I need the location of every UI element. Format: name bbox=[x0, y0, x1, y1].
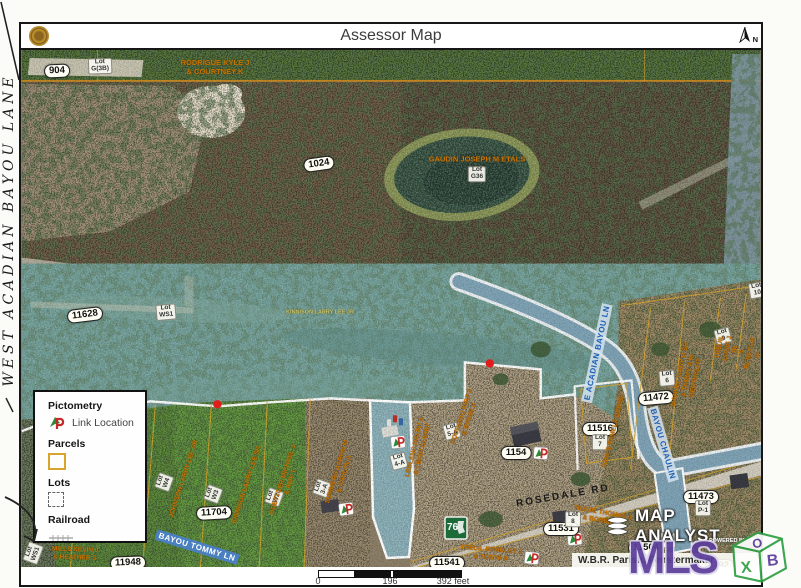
north-label: N bbox=[753, 35, 758, 44]
cube-letter-front: X bbox=[740, 559, 753, 577]
parcel-number: 11948 bbox=[110, 555, 146, 567]
legend-heading-railroad: Railroad bbox=[48, 514, 145, 526]
legend-panel: Pictometry Link Location Parcels Lots Ra… bbox=[33, 390, 147, 543]
lot-value: 6 bbox=[665, 378, 669, 385]
lot-label: LotG(3B) bbox=[88, 58, 112, 74]
parcel-number: 1154 bbox=[501, 446, 532, 460]
title-bar: Assessor Map N bbox=[21, 24, 761, 50]
scale-end: 392 feet bbox=[437, 576, 470, 586]
cube-letter-top: O bbox=[751, 535, 763, 551]
lot-value: G36 bbox=[471, 174, 483, 181]
legend-heading-parcels: Parcels bbox=[48, 438, 145, 450]
mls-watermark-text: MLS bbox=[628, 532, 717, 584]
lot-value: G(3B) bbox=[91, 66, 109, 73]
lot-label: Lot6 bbox=[658, 370, 675, 387]
legend-heading-pictometry: Pictometry bbox=[48, 400, 145, 412]
pictometry-link-marker-icon[interactable] bbox=[338, 502, 354, 516]
handwritten-road-name: WEST ACADIAN BAYOU LANE bbox=[1, 65, 19, 395]
lot-label: LotG36 bbox=[468, 166, 486, 182]
pictometry-link-marker-icon[interactable] bbox=[390, 436, 405, 449]
aerial-map: 904 1024 11628 11704 11948 11541 1154 11… bbox=[21, 50, 761, 567]
lot-value: 4-A bbox=[394, 460, 406, 469]
scale-mid: 196 bbox=[382, 576, 397, 586]
pictometry-p-icon bbox=[48, 415, 66, 431]
owner-label: MILLS KEVIN J & HEATHER S bbox=[51, 545, 98, 562]
parcel-number: 11704 bbox=[196, 505, 233, 521]
wave-layers-icon bbox=[605, 515, 630, 537]
map-frame: Assessor Map N bbox=[19, 22, 763, 587]
lot-label: LotWS1 bbox=[155, 303, 176, 320]
cube-letter-right: B bbox=[766, 552, 779, 570]
parcel-number: 904 bbox=[44, 64, 70, 79]
lot-value: 7 bbox=[598, 442, 602, 449]
lot-value: 10 bbox=[753, 289, 761, 297]
legend-heading-lots: Lots bbox=[48, 477, 145, 489]
highway-shield-76: 76 bbox=[444, 516, 468, 540]
scale-zero: 0 bbox=[315, 576, 320, 586]
route-number: 76 bbox=[447, 522, 471, 533]
link-location-dot[interactable] bbox=[486, 359, 494, 367]
owner-label: RODRIGUE KYLE J & COURTNEY K bbox=[181, 58, 250, 76]
pictometry-link-marker-icon[interactable] bbox=[533, 447, 548, 460]
mls-watermark: MLS O B X bbox=[628, 528, 801, 588]
map-title: Assessor Map bbox=[21, 27, 761, 45]
parcel-outline-swatch bbox=[48, 453, 66, 470]
assessor-map-page: WEST ACADIAN BAYOU LANE Assessor Map N bbox=[0, 0, 801, 588]
lot-value: WS1 bbox=[159, 311, 174, 319]
railroad-tick-icon bbox=[48, 534, 74, 542]
owner-label: GAUDIN JOSEPH M ETALS bbox=[429, 155, 526, 164]
lot-dashed-swatch bbox=[48, 492, 64, 507]
link-location-dot[interactable] bbox=[213, 400, 221, 408]
pictometry-link-marker-icon[interactable] bbox=[524, 551, 539, 564]
owner-label: KINNISON LARRY LEE JR bbox=[286, 310, 354, 317]
mls-box-cube-icon: O B X bbox=[725, 523, 795, 588]
lot-label: Lot10 bbox=[748, 281, 761, 299]
legend-link-location: Link Location bbox=[72, 417, 134, 429]
